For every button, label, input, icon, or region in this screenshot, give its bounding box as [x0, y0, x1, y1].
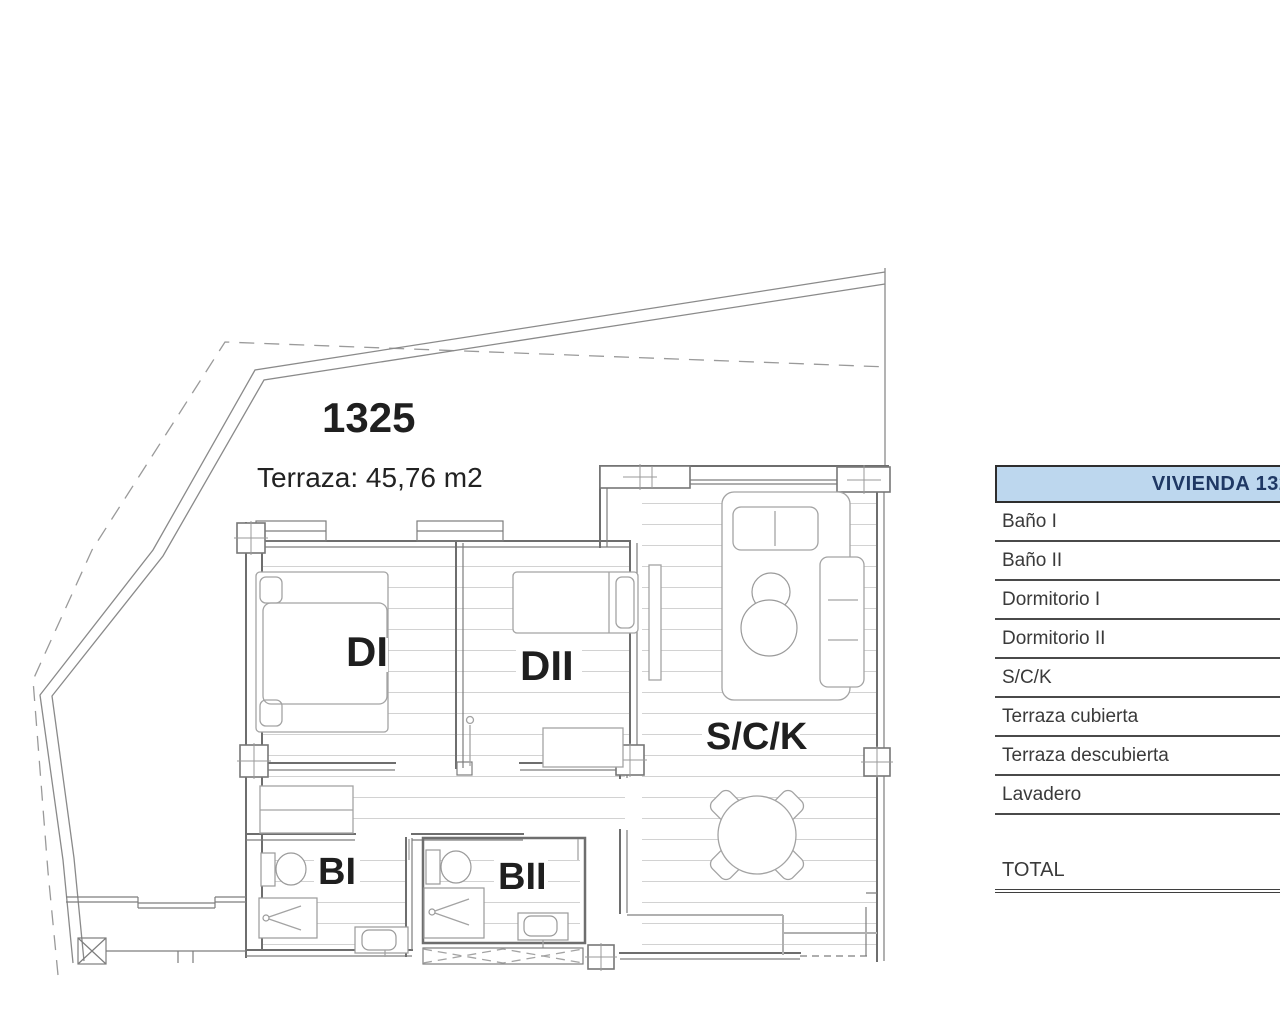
unit-number-label: 1325	[322, 394, 415, 441]
exterior-structures	[66, 897, 246, 964]
table-row-bano1: Baño I	[995, 503, 1280, 542]
table-row-total: TOTAL	[995, 852, 1280, 893]
room-label-dormitorio1: DI	[346, 628, 388, 675]
toilet-tank	[261, 853, 275, 886]
room-label-dormitorio2: DII	[520, 642, 574, 689]
floor-plan-sheet: { "plan": { "unit_number": "1325", "terr…	[0, 0, 1280, 1024]
table-row-terraza-cubierta: Terraza cubierta	[995, 698, 1280, 737]
table-row-terraza-descubierta: Terraza descubierta	[995, 737, 1280, 776]
sideboard	[820, 557, 864, 687]
table-row-bano2: Baño II	[995, 542, 1280, 581]
area-table-header: VIVIENDA 1325	[995, 465, 1280, 503]
sink-basin	[362, 930, 396, 950]
hallway-closet	[260, 786, 353, 833]
armchair	[741, 600, 797, 656]
area-table: VIVIENDA 1325 Baño I Baño II Dormitorio …	[995, 465, 1280, 893]
table-row-lavadero: Lavadero	[995, 776, 1280, 815]
dining-table	[718, 796, 796, 874]
terrace-area-label: Terraza: 45,76 m2	[257, 462, 483, 493]
room-label-bano1: BI	[318, 851, 356, 893]
toilet-bowl	[441, 851, 471, 883]
sink-basin	[524, 916, 557, 936]
tall-cabinet	[649, 565, 661, 680]
desk	[543, 728, 623, 767]
pillow	[616, 577, 634, 628]
area-table-title: VIVIENDA 1325	[1152, 473, 1280, 496]
table-row-sck: S/C/K	[995, 659, 1280, 698]
room-label-salon: S/C/K	[706, 716, 808, 758]
table-row-dormitorio1: Dormitorio I	[995, 581, 1280, 620]
pillow	[260, 577, 282, 603]
table-row-dormitorio2: Dormitorio II	[995, 620, 1280, 659]
room-label-bano2: BII	[498, 856, 547, 898]
duct-hatched	[423, 948, 583, 964]
toilet-bowl	[276, 853, 306, 885]
toilet-tank	[426, 850, 440, 884]
window-salon	[690, 480, 837, 484]
